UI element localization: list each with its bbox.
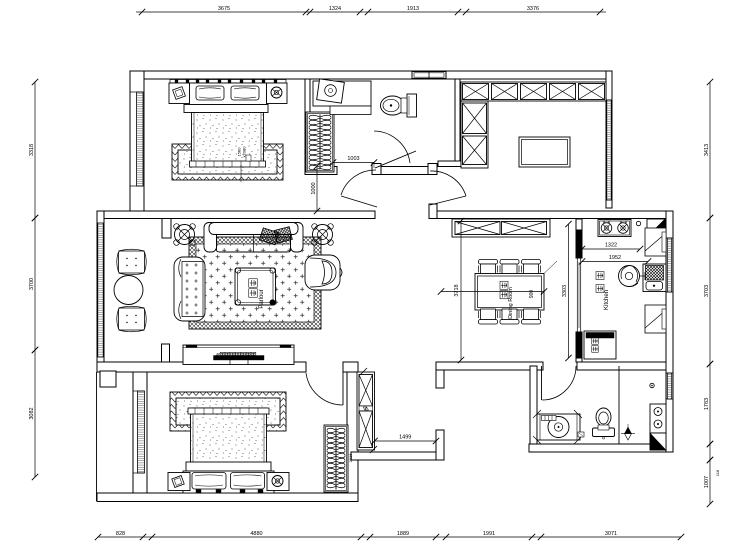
svg-text:1991: 1991 bbox=[483, 531, 495, 537]
svg-text:828: 828 bbox=[116, 531, 125, 537]
svg-text:118: 118 bbox=[715, 469, 720, 476]
svg-text:1003: 1003 bbox=[347, 156, 359, 162]
svg-text:3071: 3071 bbox=[605, 531, 617, 537]
svg-text:2016: 2016 bbox=[348, 453, 353, 463]
svg-text:1007: 1007 bbox=[704, 476, 710, 488]
svg-text:3413: 3413 bbox=[704, 144, 710, 156]
svg-text:3700: 3700 bbox=[29, 278, 35, 290]
svg-text:1000: 1000 bbox=[311, 182, 317, 194]
svg-text:3376: 3376 bbox=[527, 6, 539, 12]
svg-text:3718: 3718 bbox=[454, 284, 460, 296]
svg-text:1322: 1322 bbox=[605, 243, 617, 249]
svg-text:Parlour: Parlour bbox=[259, 289, 265, 308]
svg-text:1324: 1324 bbox=[329, 6, 341, 12]
svg-text:1913: 1913 bbox=[407, 6, 419, 12]
svg-text:3675: 3675 bbox=[218, 6, 230, 12]
svg-text:1952: 1952 bbox=[609, 255, 621, 261]
svg-text:3082: 3082 bbox=[29, 407, 35, 419]
svg-text:900: 900 bbox=[529, 290, 535, 299]
svg-text:1499: 1499 bbox=[399, 435, 411, 441]
svg-text:4880: 4880 bbox=[250, 531, 262, 537]
svg-text:Kitchen: Kitchen bbox=[604, 290, 610, 310]
svg-text:1889: 1889 bbox=[397, 531, 409, 537]
svg-text:1783: 1783 bbox=[704, 398, 710, 410]
svg-text:3303: 3303 bbox=[562, 285, 568, 297]
svg-text:3703: 3703 bbox=[704, 285, 710, 297]
svg-text:3318: 3318 bbox=[29, 144, 35, 156]
